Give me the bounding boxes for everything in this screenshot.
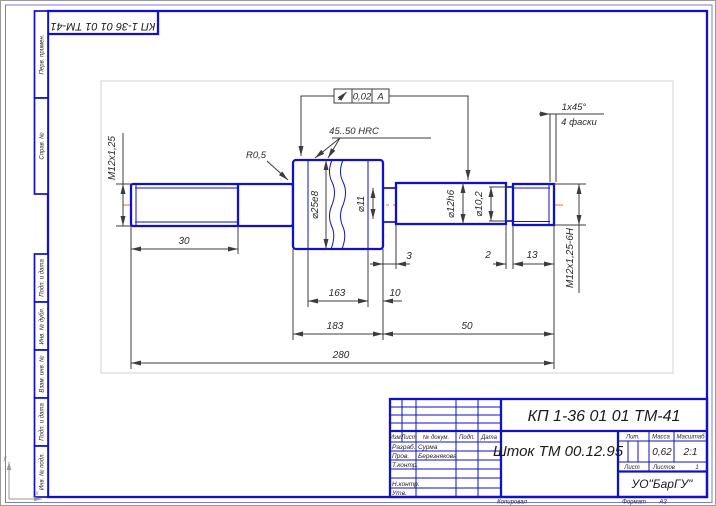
margin-label-podp-data-2: Подп. и дата [40, 403, 46, 441]
footer-format-value: А3 [658, 500, 667, 506]
dim-2: 2 [484, 250, 491, 261]
dim-183: 183 [327, 321, 344, 332]
margin-label-sprav-no: Справ. № [39, 132, 46, 160]
dim-thread-left: М12х1,25 [107, 136, 118, 180]
header-list2: Лист [623, 465, 639, 471]
titleblock-designation: КП 1-36 01 01 ТМ-41 [528, 408, 681, 425]
fillet-label: R0,5 [246, 150, 267, 161]
dim-thread-right: М12х1,25-6Н [565, 227, 576, 288]
footer-format-label: Формат [622, 500, 646, 506]
drawing-sheet: КП 1-36 01 01 ТМ-41 Перв. примен. Справ.… [0, 0, 716, 506]
organization-name: УО"БарГУ" [631, 477, 694, 491]
titleblock-part-name: Шток ТМ 00.12.95 [493, 443, 624, 460]
dim-50: 50 [461, 321, 473, 332]
chamfer-note: 4 фаски [561, 117, 597, 128]
dim-dia-10-2: ⌀10,2 [474, 191, 485, 217]
dim-30: 30 [178, 236, 190, 247]
dim-280: 280 [332, 350, 350, 361]
margin-label-inv-podl: Инв. № подл. [39, 453, 46, 490]
margin-label-vzam-inv: Взам. инв. № [39, 355, 46, 393]
drawing-view[interactable]: 30 163 10 183 50 280 3 2 [101, 81, 673, 373]
chamfer-size: 1х45° [562, 102, 587, 113]
row-prov-label: Пров. [392, 453, 409, 460]
margin-label-podp-data-1: Подп. и дата [40, 259, 46, 297]
sheet-frame [6, 5, 713, 503]
row-prov-name: Березнякова [418, 453, 457, 460]
margin-columns: Перв. примен. Справ. № Подп. и дата Инв.… [35, 11, 49, 497]
dim-3: 3 [406, 251, 412, 262]
header-massa: Масса [652, 435, 670, 441]
margin-label-perv-primen: Перв. примен. [40, 35, 46, 75]
tolerance-value: 0,02 [353, 92, 372, 103]
row-razrab-label: Разраб. [392, 443, 416, 451]
hardness-note: 45..50 HRC [329, 126, 379, 137]
header-podp: Подп. [459, 435, 475, 441]
dim-13: 13 [526, 250, 538, 261]
row-n-kontr-label: Н.контр. [392, 481, 420, 488]
row-t-kontr-label: Т.контр. [392, 462, 418, 469]
header-lit: Лит. [625, 435, 640, 441]
dim-dia-25: ⌀25е8 [310, 190, 321, 219]
header-list: Лист [400, 435, 416, 441]
origin-y-label: y [3, 456, 8, 462]
top-designation-box: КП 1-36 01 01 ТМ-41 [49, 11, 158, 34]
dim-dia-12: ⌀12h6 [446, 189, 457, 218]
header-masshtab: Масштаб [676, 435, 705, 441]
dim-10: 10 [389, 288, 401, 299]
header-n-dokum: № докум. [423, 434, 449, 441]
header-data: Дата [480, 435, 497, 441]
margin-label-inv-dubl: Инв. № дубл. [39, 308, 46, 345]
massa-value: 0,62 [652, 447, 672, 458]
row-razrab-name: Сурма [418, 444, 438, 451]
header-listov: Листов [652, 465, 675, 471]
title-block: КП 1-36 01 01 ТМ-41 Шток ТМ 00.12.95 Изм… [390, 399, 707, 497]
row-utv-label: Утв. [391, 490, 407, 497]
dim-dia-11: ⌀11 [356, 196, 367, 212]
dim-163: 163 [329, 288, 346, 299]
designation-inverted-text: КП 1-36 01 01 ТМ-41 [50, 20, 155, 32]
footer-kopiroval: Копировал [497, 500, 527, 506]
tolerance-datum: А [376, 92, 383, 103]
listov-value: 1 [695, 465, 698, 471]
scale-value: 2:1 [683, 447, 698, 458]
